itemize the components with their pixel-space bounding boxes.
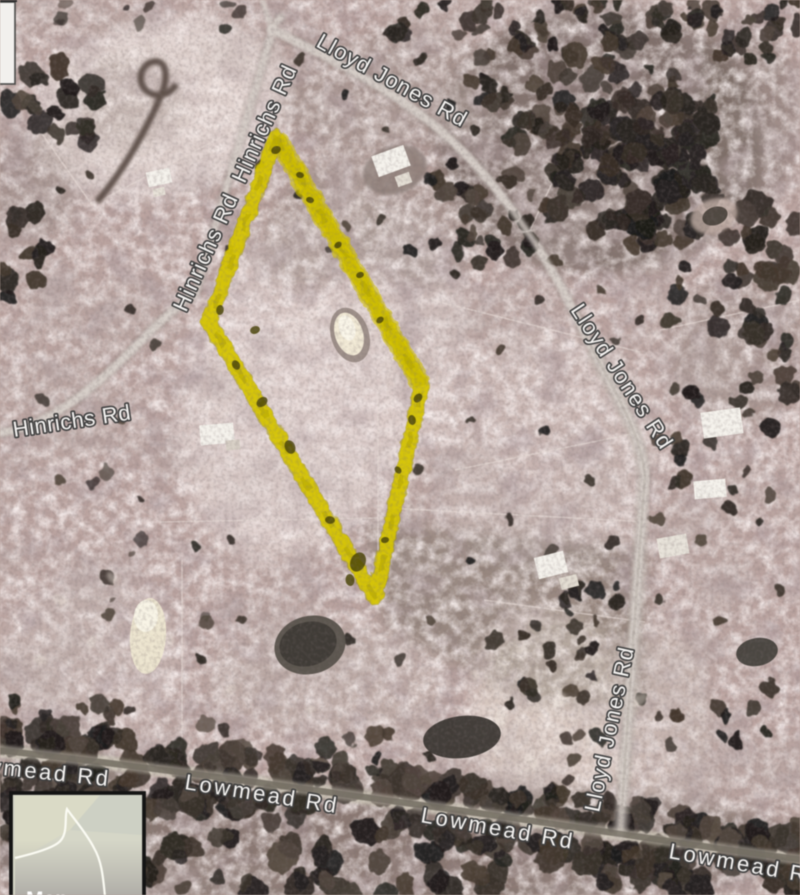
svg-text:Map: Map (26, 888, 68, 895)
